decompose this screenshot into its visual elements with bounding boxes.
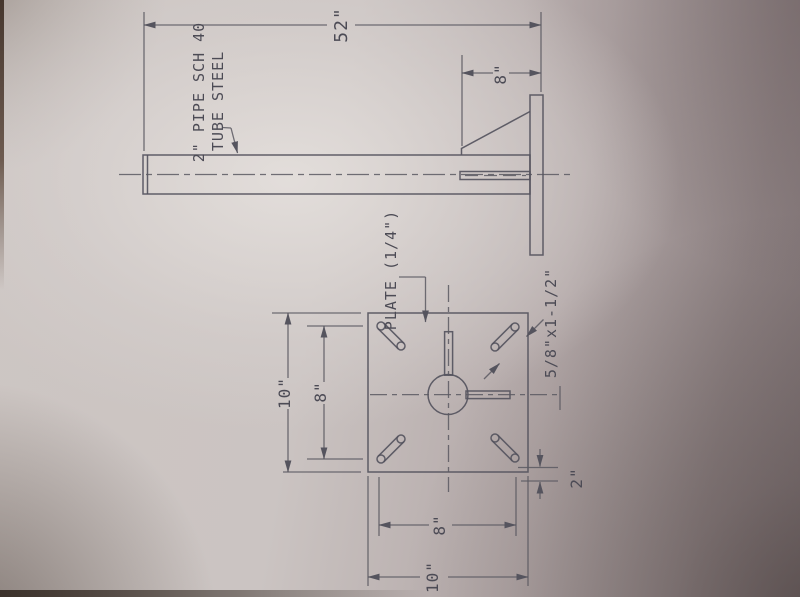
pipe-label-line1: 2" PIPE SCH 40 — [190, 22, 208, 162]
photo-of-drawing: 52" 8" 2" PIPE SCH 40 TUBE STEEL — [0, 0, 800, 597]
pipe-callout: 2" PIPE SCH 40 TUBE STEEL — [190, 22, 238, 162]
slot-size-label: 5/8"x1-1/2" — [542, 268, 560, 378]
bolt-slot-top-right — [491, 323, 519, 351]
dim-10-bottom-label: 10" — [423, 561, 442, 593]
dim-8-side-label: 8" — [491, 63, 510, 84]
bolt-slot-bottom-left — [377, 435, 405, 463]
slot-callout: 5/8"x1-1/2" — [484, 268, 560, 379]
dim-52-label: 52" — [331, 7, 352, 43]
dim-8-left: 8" — [307, 326, 363, 459]
dim-8-bottom-label: 8" — [430, 514, 449, 535]
drafting-drawing: 52" 8" 2" PIPE SCH 40 TUBE STEEL — [0, 0, 800, 597]
plate-label: PLATE (1/4") — [382, 210, 400, 330]
pipe-leader-arrow — [231, 128, 238, 153]
plate-callout: PLATE (1/4") — [382, 210, 426, 330]
gusset-triangle — [462, 112, 531, 155]
pipe-label-line2: TUBE STEEL — [209, 51, 227, 151]
bolt-slot-bottom-right — [491, 434, 519, 462]
dim-8-side: 8" — [462, 55, 541, 146]
side-view: 52" 8" 2" PIPE SCH 40 TUBE STEEL — [119, 7, 570, 255]
dim-8-bottom: 8" — [379, 477, 516, 536]
dim-8-left-label: 8" — [311, 381, 330, 402]
plan-view: 10" 8" 8" — [272, 210, 586, 593]
dim-2-label: 2" — [567, 467, 586, 488]
dim-10-left-label: 10" — [275, 377, 294, 409]
